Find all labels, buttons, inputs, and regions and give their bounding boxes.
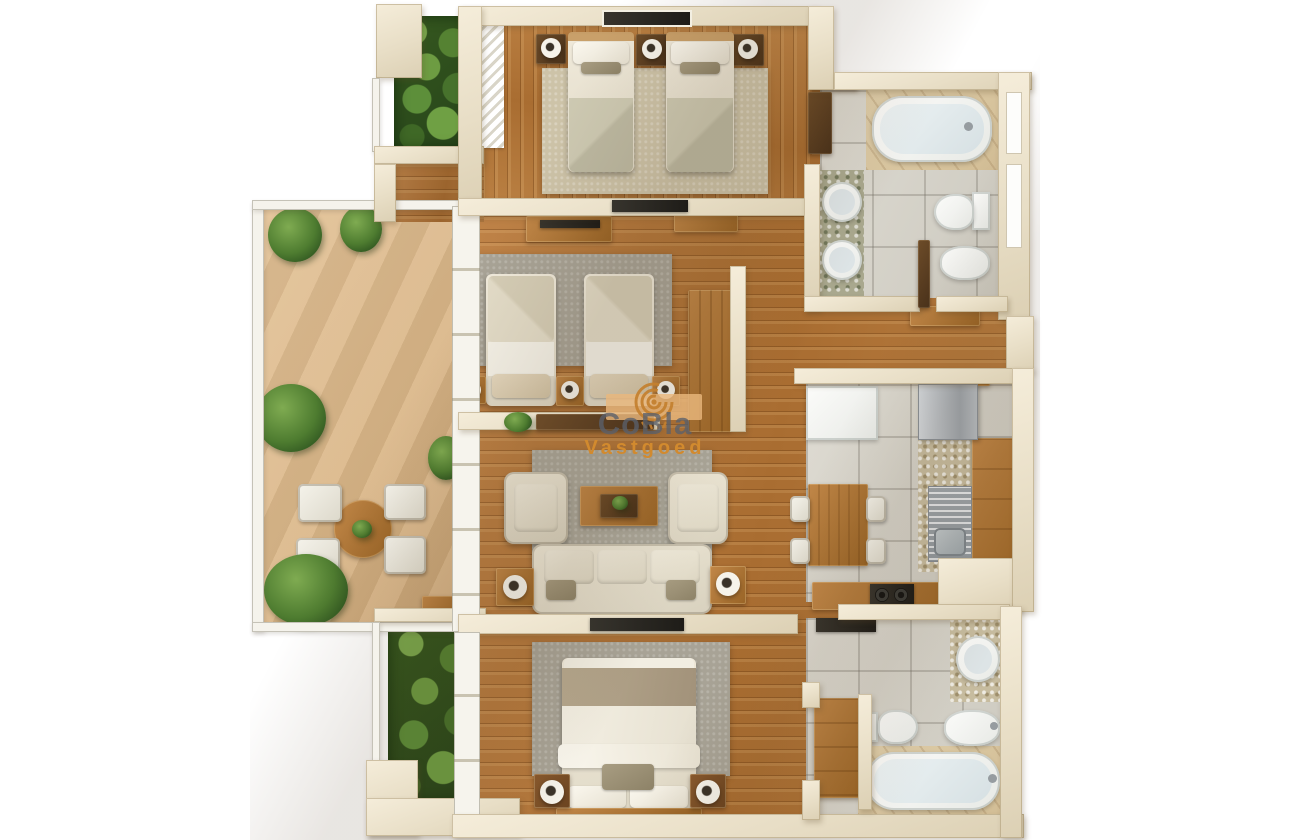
terrace-rail-left xyxy=(252,202,264,632)
bathroom1-niche-1 xyxy=(1006,92,1022,154)
bathroom1-toilet-tank xyxy=(972,192,990,230)
wall-bathroom1-bottom-r xyxy=(936,296,1008,312)
entry-walkway-left-wall xyxy=(374,164,396,222)
bathroom2-sink xyxy=(956,636,1000,682)
wall-bedroom2-right xyxy=(730,266,746,432)
wall-bathroom2-inner-1 xyxy=(802,682,820,708)
dining-chair-4 xyxy=(866,538,886,564)
watermark-subtitle-text: Vastgoed xyxy=(575,437,715,460)
wall-bottom xyxy=(452,814,1024,838)
dining-chair-2 xyxy=(790,538,810,564)
bathroom1-sink-2 xyxy=(822,240,862,280)
bathroom2-bathtub xyxy=(866,752,1000,810)
wall-bathroom2-right xyxy=(1000,606,1022,838)
bathroom2-tub-faucet xyxy=(988,774,997,783)
living-armchair-left xyxy=(504,472,568,544)
bedroom1-bed-right xyxy=(666,32,734,172)
dining-chair-1 xyxy=(790,496,810,522)
terrace-plant-4 xyxy=(264,554,348,626)
wall-bedroom1-left xyxy=(458,6,482,212)
balcony-north-rail xyxy=(372,78,380,152)
living-lamp-left xyxy=(503,575,527,599)
wall-bathroom2-top xyxy=(838,604,1010,620)
bedroom2-plant xyxy=(504,412,532,432)
bathroom2-toilet-bowl xyxy=(878,710,918,744)
bedroom2-tv xyxy=(540,220,600,228)
bathroom1-toilet-bowl xyxy=(934,194,974,230)
bedroom1-tv xyxy=(612,200,688,212)
balcony-north-corner-wall xyxy=(376,4,422,78)
terrace-chair-2 xyxy=(384,484,426,520)
terrace-rail-top xyxy=(252,200,468,210)
terrace-chair-1 xyxy=(298,484,342,522)
kitchen-cooktop xyxy=(870,584,914,606)
kitchen-corner-block xyxy=(938,558,1022,610)
bedroom2-bed-left xyxy=(486,274,556,406)
terrace-rail-bottom xyxy=(252,622,468,632)
terrace-plant-1 xyxy=(268,208,322,262)
wall-kitchen-top xyxy=(794,368,1018,384)
living-tv xyxy=(590,618,684,631)
terrace-plant-3 xyxy=(256,384,326,452)
kitchen-white-cabinet xyxy=(806,386,878,440)
master-bed xyxy=(562,658,696,810)
wall-bathroom2-inner-2 xyxy=(858,694,872,810)
kitchen-fridge xyxy=(918,384,978,440)
terrace-chair-4 xyxy=(384,536,426,574)
living-armchair-right xyxy=(668,472,728,544)
bathroom2-shelf xyxy=(816,618,876,632)
master-lamp-right xyxy=(696,780,720,804)
bedroom2-lamp-mid xyxy=(561,381,579,399)
bedroom1-wall-picture xyxy=(604,12,690,25)
dining-table xyxy=(808,484,868,566)
bathroom2-cabinet xyxy=(814,698,862,798)
bathroom1-niche-2 xyxy=(1006,164,1022,248)
living-table-plant xyxy=(612,496,628,510)
dining-chair-3 xyxy=(866,496,886,522)
bathroom1-door xyxy=(918,240,930,308)
floor-plan: CoBla Vastgoed xyxy=(0,0,1290,840)
terrace-table-plant xyxy=(352,520,372,538)
bedroom1-bed-left xyxy=(568,32,634,172)
bedroom1-closet-louver xyxy=(480,22,504,148)
kitchen-sink-basin xyxy=(934,528,966,556)
bedroom1-lamp-right xyxy=(738,39,758,59)
window-wall-master xyxy=(454,632,480,818)
living-lamp-right xyxy=(716,572,740,596)
bathroom1-tub-faucet xyxy=(964,122,973,131)
wall-right-jog xyxy=(1006,316,1034,372)
living-sofa xyxy=(532,544,712,614)
wall-bathroom1-bottom-l xyxy=(804,296,920,312)
bathroom2-bidet-faucet xyxy=(990,722,998,730)
master-lamp-left xyxy=(540,780,564,804)
exterior-mask-top-right xyxy=(834,0,1034,72)
wall-bathroom1-left xyxy=(804,164,820,310)
bathroom1-bathtub xyxy=(872,96,992,162)
bedroom1-lamp-left xyxy=(541,38,561,58)
corridor-dresser xyxy=(808,92,832,154)
bathroom1-sink-1 xyxy=(822,182,862,222)
wall-bathroom2-inner-3 xyxy=(802,780,820,820)
wall-top-right-stub xyxy=(808,6,834,90)
bathroom1-bidet xyxy=(940,246,990,280)
bedroom1-lamp-mid xyxy=(642,39,662,59)
wall-kitchen-right xyxy=(1012,368,1034,612)
